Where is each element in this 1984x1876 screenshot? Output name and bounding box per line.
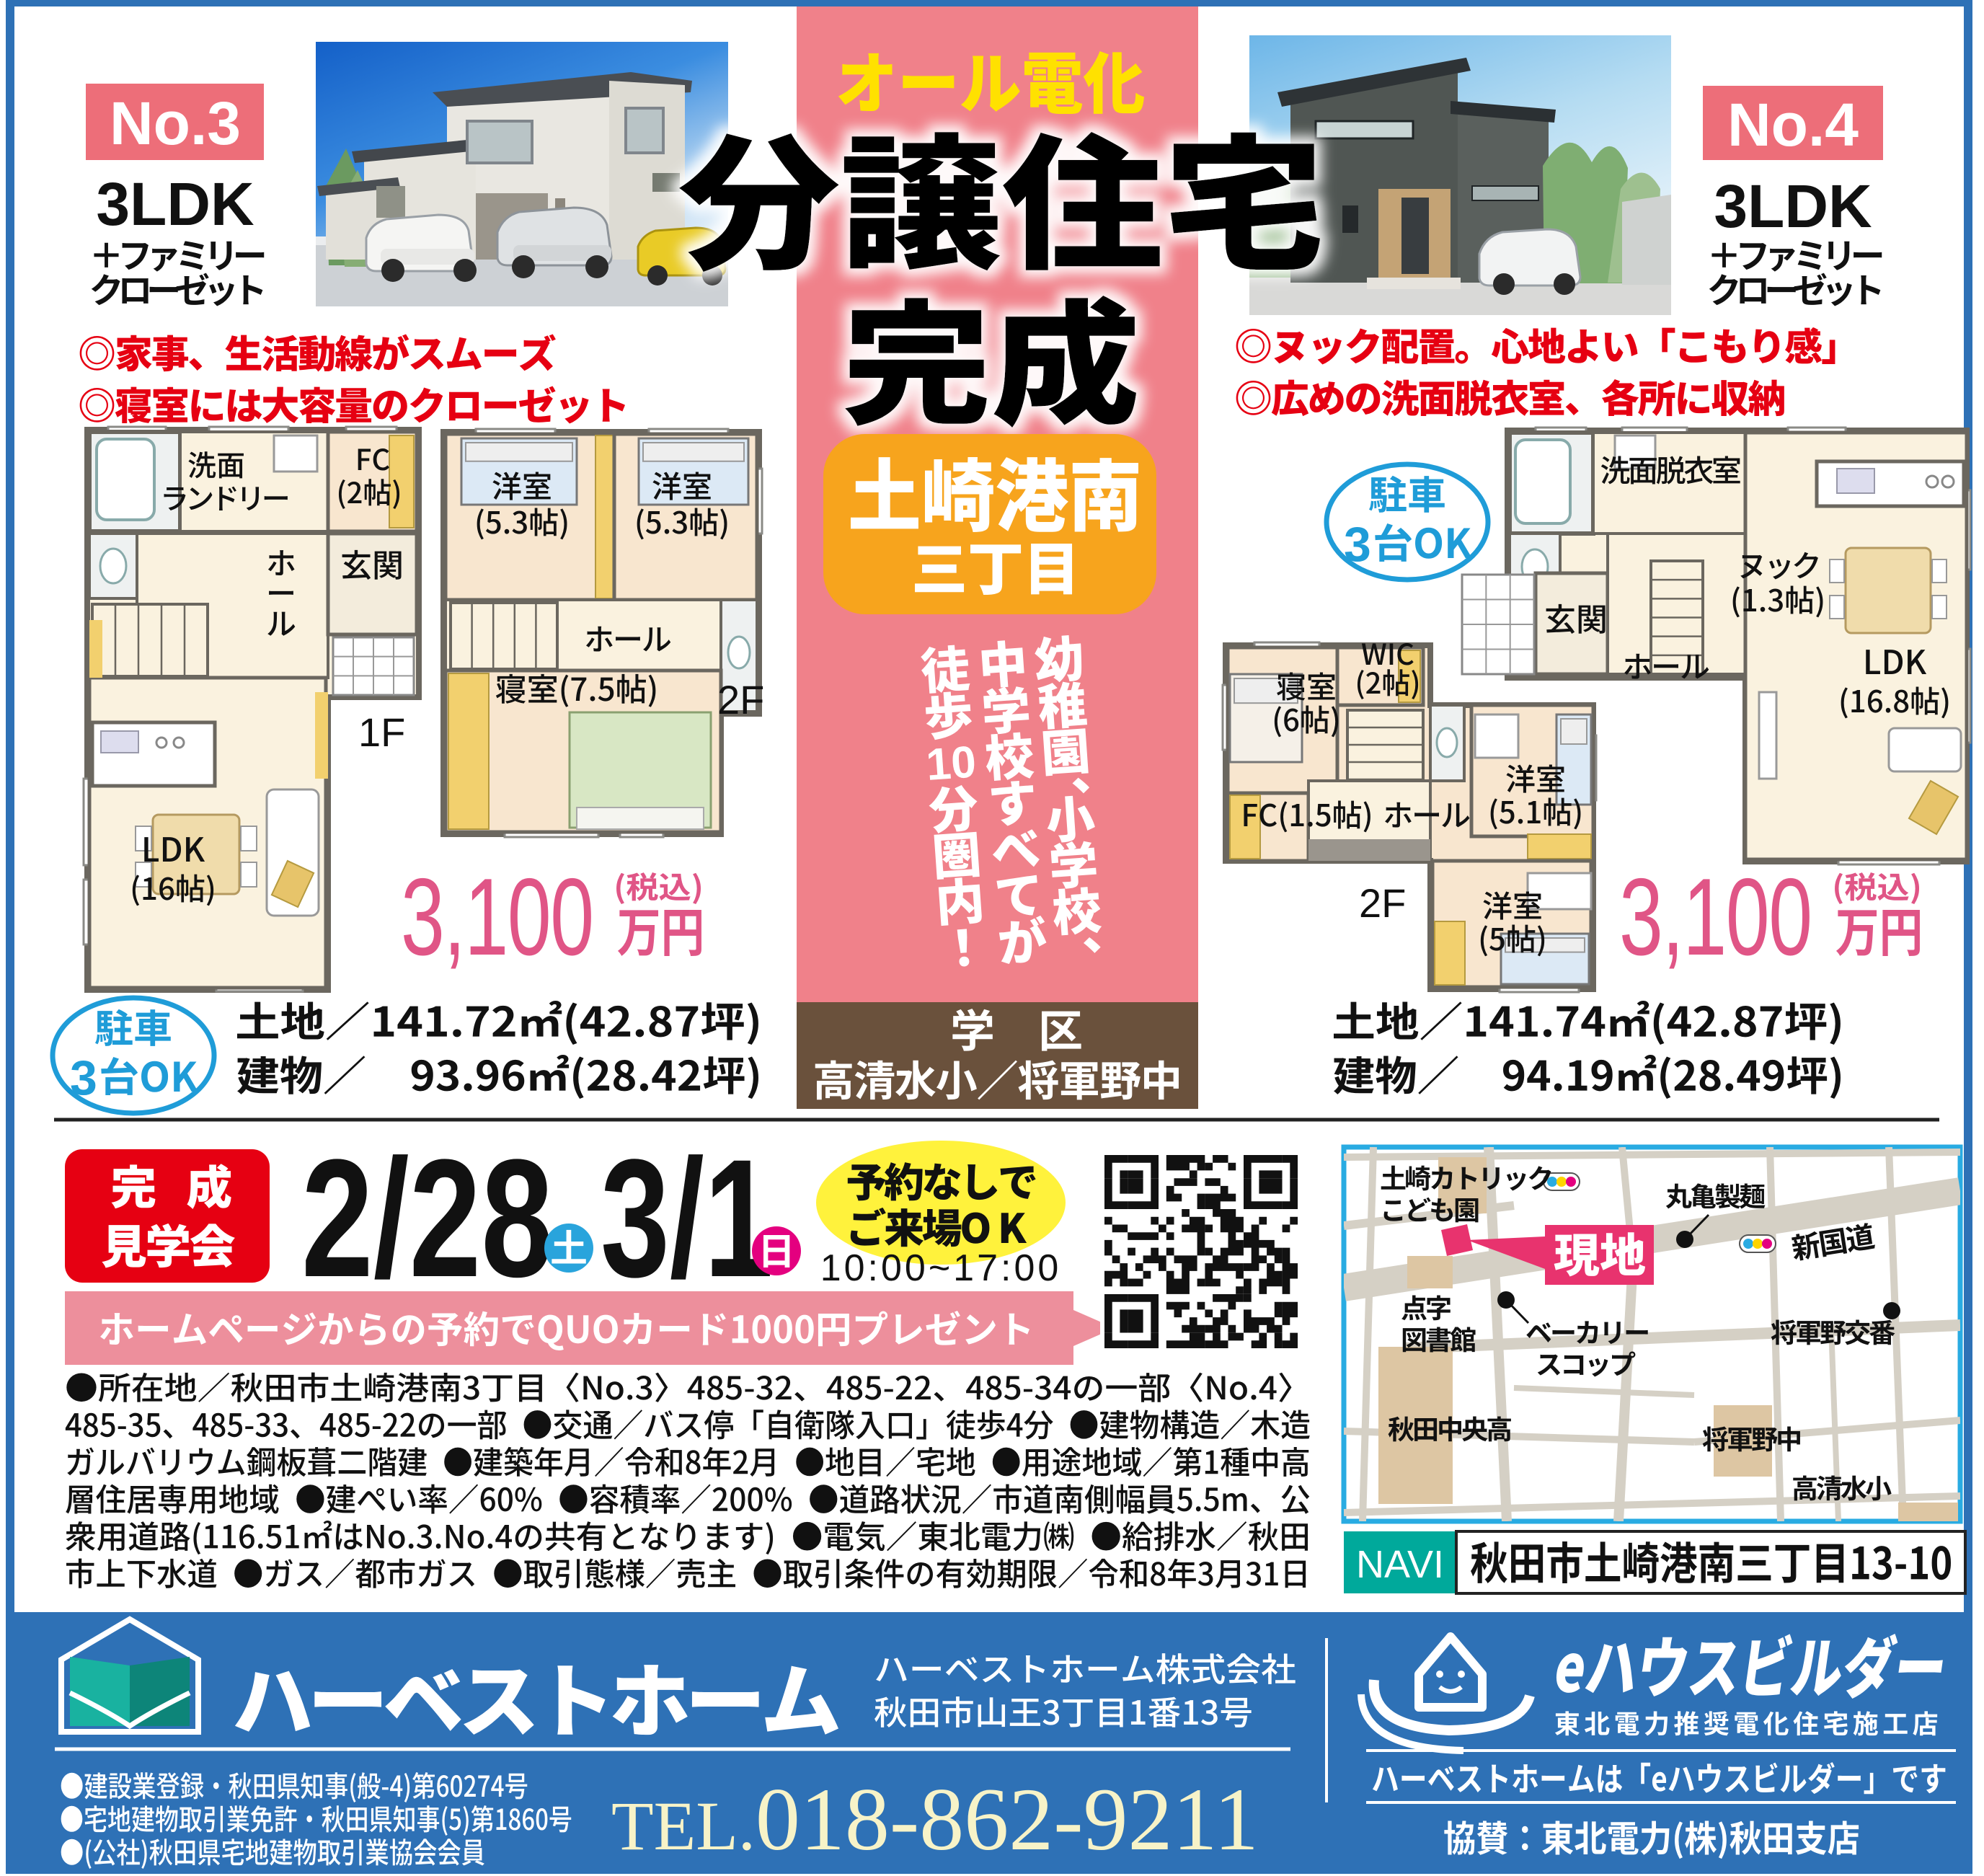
svg-text:No.4: No.4 — [1727, 91, 1859, 159]
svg-text:2F: 2F — [1359, 880, 1406, 926]
svg-text:3,100: 3,100 — [1619, 856, 1812, 978]
svg-text:NAVI: NAVI — [1356, 1543, 1444, 1586]
svg-text:3/1: 3/1 — [601, 1125, 774, 1312]
svg-text:3: 3 — [70, 1050, 97, 1105]
svg-text:3LDK: 3LDK — [1714, 172, 1872, 240]
svg-text:3: 3 — [1344, 517, 1371, 572]
svg-text:10: 10 — [924, 737, 978, 790]
svg-text:No.3: No.3 — [110, 89, 241, 157]
svg-text:2F: 2F — [717, 677, 764, 722]
svg-text:10:00~17:00: 10:00~17:00 — [820, 1247, 1062, 1289]
svg-text:3,100: 3,100 — [401, 856, 593, 978]
svg-text:3LDK: 3LDK — [96, 170, 254, 238]
svg-text:2/28: 2/28 — [301, 1125, 553, 1312]
svg-text:1F: 1F — [358, 709, 405, 755]
